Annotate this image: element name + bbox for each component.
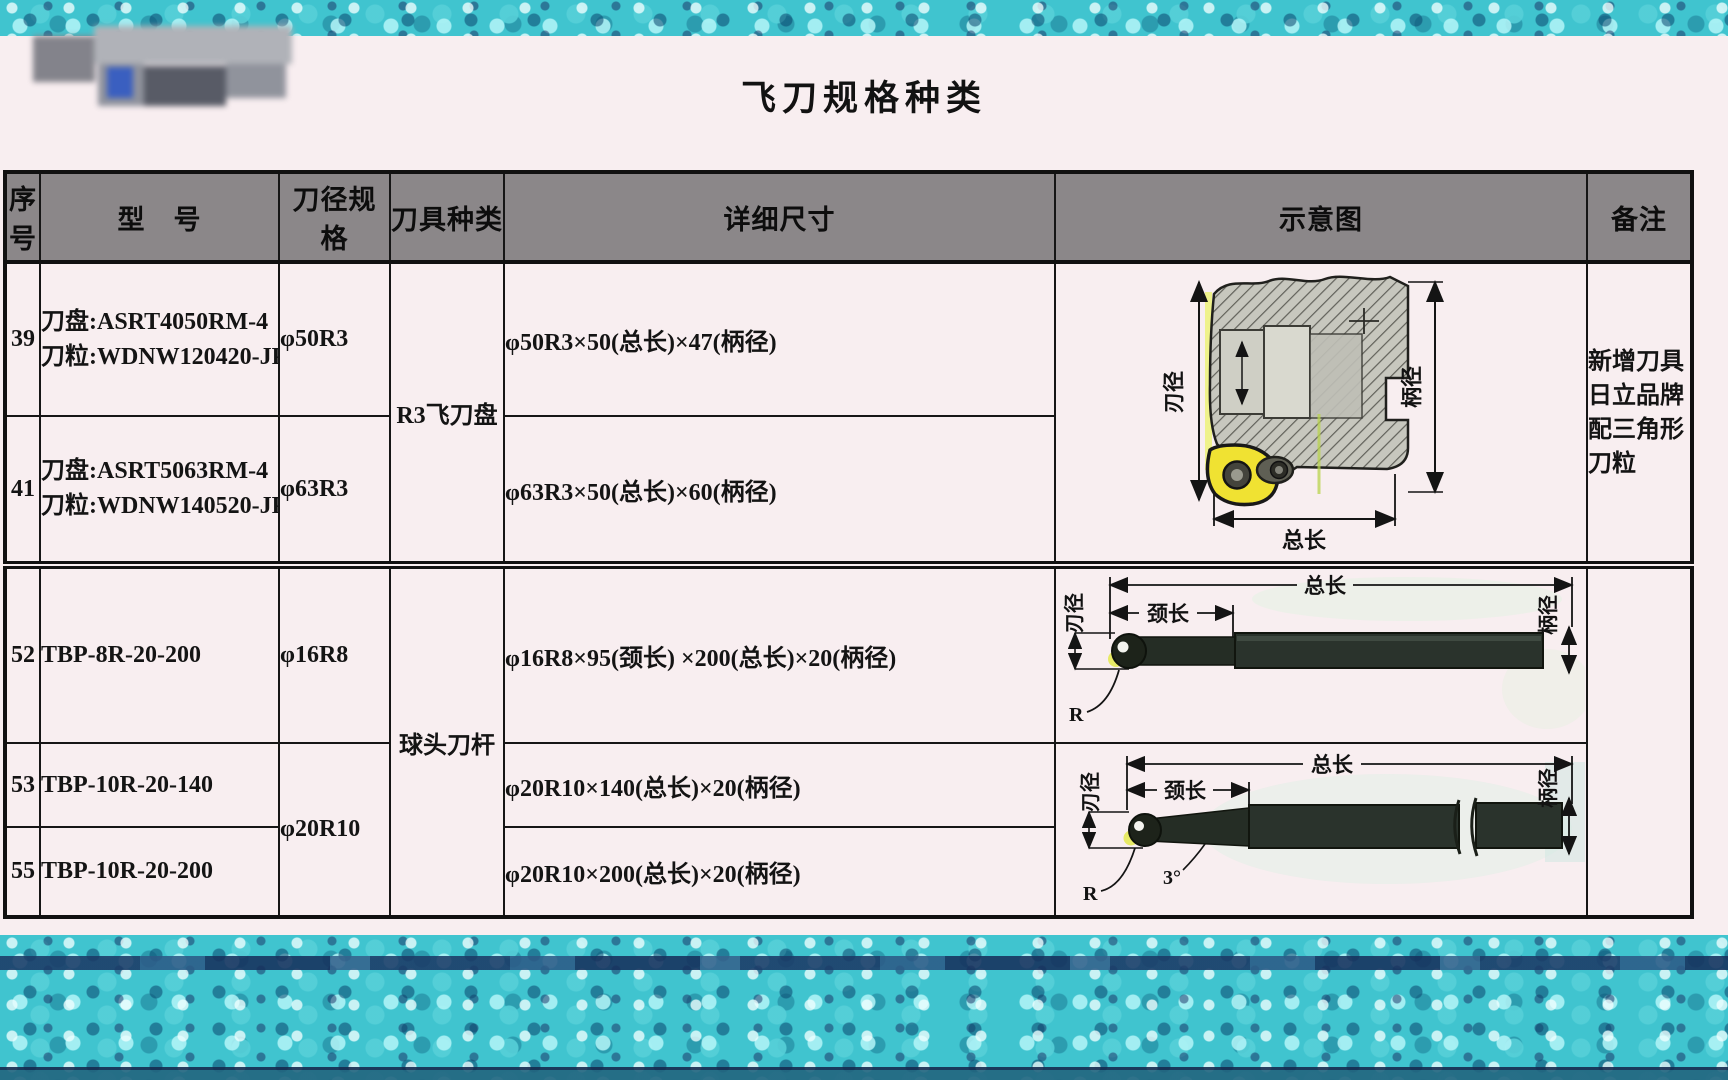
blade-diameter-label: 刃径 [1162,371,1186,413]
insert-screw-center [1231,469,1243,481]
neck-length-label: 颈长 [1164,779,1207,803]
navy-stripe [0,956,1728,970]
radius-leader [1101,848,1135,891]
total-length-dimension: 总长 [1214,519,1395,553]
remark-line: 刀粒 [1588,447,1690,481]
ball-end [1112,634,1146,668]
radius-label: R [1083,883,1098,905]
censor-block [94,26,292,64]
column-header-tool-type: 刀具种类 [390,172,504,262]
cell-dimensions: φ20R10×140(总长)×20(柄径) [504,743,1055,827]
column-header-diameter-spec: 刀径规格 [279,172,390,262]
cell-tool-type-r3: R3飞刀盘 [390,262,504,565]
tapered-neck-section [1149,808,1249,846]
ball-highlight [1134,821,1144,831]
table-row-52: 52 TBP-8R-20-200 φ16R8 球头刀杆 φ16R8×95(颈长)… [5,565,1692,743]
cell-dimensions: φ20R10×200(总长)×20(柄径) [504,827,1055,917]
column-header-dimensions: 详细尺寸 [504,172,1055,262]
cell-dimensions: φ63R3×50(总长)×60(柄径) [504,416,1055,565]
blade-diameter-dimension: 刃径 [1162,282,1199,500]
column-header-remark: 备注 [1587,172,1692,262]
cell-model: 刀盘:ASRT5063RM-4 刀粒:WDNW140520-JP4020 [40,416,279,565]
remark-line: 新增刀具 [1588,345,1690,379]
header-row: 序号 型 号 刀径规格 刀具种类 详细尺寸 示意图 备注 [5,172,1692,262]
cell-serial: 53 [5,743,40,827]
table-row-39: 39 刀盘:ASRT4050RM-4 刀粒:WDNW120420-JP4020 … [5,262,1692,416]
shank-diameter-label: 柄径 [1400,366,1424,408]
tapered-ball-bar-diagram: 总长 颈长 刃径 [1057,744,1585,908]
shank-diameter-label: 柄径 [1536,595,1560,635]
cell-dimensions: φ50R3×50(总长)×47(柄径) [504,262,1055,416]
cell-diagram-ball-bar-53-55: 总长 颈长 刃径 [1055,743,1587,917]
total-length-label: 总长 [1304,574,1347,598]
column-header-diagram: 示意图 [1055,172,1587,262]
total-length-label: 总长 [1282,528,1327,553]
cell-serial: 52 [5,565,40,743]
neck-length-label: 颈长 [1147,602,1190,626]
cell-serial: 41 [5,416,40,565]
cell-diagram-fly-cutter: 刃径 柄径 总长 [1055,262,1587,565]
radius-label: R [1069,704,1084,726]
bottom-texture-band [0,935,1728,1080]
shank-sheen [1237,636,1541,641]
band-bottom-edge [0,1067,1728,1080]
remark-line: 配三角形 [1588,413,1690,447]
total-length-label: 总长 [1311,753,1354,777]
model-line: 刀粒:WDNW120420-JP4020 [41,340,278,375]
cell-tool-type-ball: 球头刀杆 [390,565,504,917]
model-line: TBP-10R-20-200 [41,854,278,889]
bore-detail [1264,326,1310,418]
ball-highlight [1118,642,1129,653]
column-header-serial: 序号 [5,172,40,262]
radius-leader [1087,670,1119,712]
model-line: 刀粒:WDNW140520-JP4020 [41,489,278,524]
cell-diameter: φ20R10 [279,743,390,917]
ball-end [1129,814,1161,846]
cell-serial: 39 [5,262,40,416]
cell-diagram-ball-bar-52: 总长 颈长 刃径 [1055,565,1587,743]
model-line: TBP-8R-20-200 [41,638,278,673]
blade-diameter-label: 刃径 [1062,593,1086,633]
spec-table: 序号 型 号 刀径规格 刀具种类 详细尺寸 示意图 备注 39 刀盘:ASRT4… [3,170,1694,919]
cell-serial: 55 [5,827,40,917]
cell-dimensions: φ16R8×95(颈长) ×200(总长)×20(柄径) [504,565,1055,743]
taper-angle-leader [1183,844,1205,870]
column-header-model: 型 号 [40,172,279,262]
page-title: 飞刀规格种类 [0,70,1728,121]
remark-line: 日立品牌 [1588,379,1690,413]
model-line: 刀盘:ASRT4050RM-4 [41,305,278,340]
cell-model: 刀盘:ASRT4050RM-4 刀粒:WDNW120420-JP4020 [40,262,279,416]
shank-diameter-label: 柄径 [1536,768,1560,808]
bore-detail [1310,334,1362,418]
shank-section [1249,805,1459,848]
clamp-screw-center [1275,466,1283,474]
cell-model: TBP-10R-20-200 [40,827,279,917]
fly-cutter-diagram: 刃径 柄径 总长 [1057,264,1585,554]
table-row-53: 53 TBP-10R-20-140 φ20R10 φ20R10×140(总长)×… [5,743,1692,827]
taper-angle-label: 3° [1163,867,1181,889]
ball-bar-diagram: 总长 颈长 刃径 [1057,569,1585,735]
cell-model: TBP-10R-20-140 [40,743,279,827]
cell-model: TBP-8R-20-200 [40,565,279,743]
blade-diameter-label: 刃径 [1078,772,1102,812]
slide-page: { "page": { "title": "飞刀规格种类" }, "table"… [0,0,1728,1080]
cell-diameter: φ50R3 [279,262,390,416]
paper-tint [1252,577,1562,621]
model-line: TBP-10R-20-140 [41,768,278,803]
cell-diameter: φ16R8 [279,565,390,743]
cell-remark-empty [1587,565,1692,917]
cell-diameter: φ63R3 [279,416,390,565]
shank-section-after-break [1476,803,1562,848]
model-line: 刀盘:ASRT5063RM-4 [41,454,278,489]
cell-remark: 新增刀具 日立品牌 配三角形 刀粒 [1587,262,1692,565]
